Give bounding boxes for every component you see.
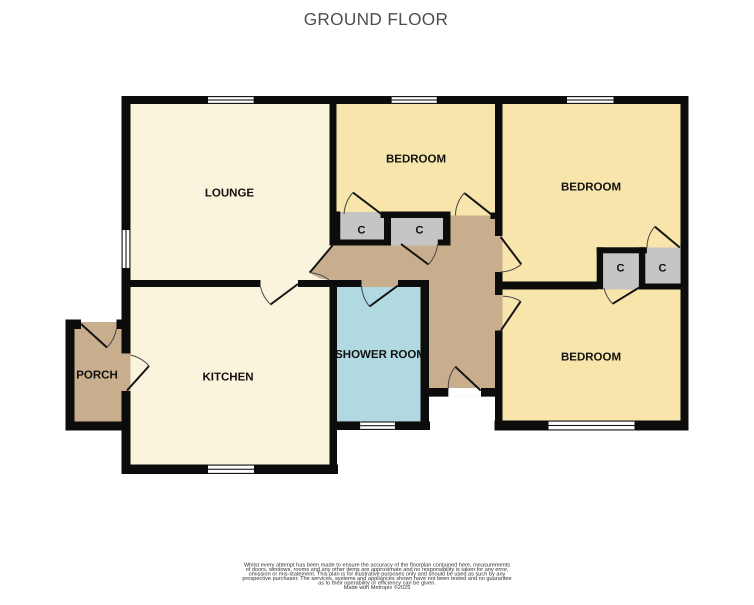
svg-text:C: C (358, 225, 366, 237)
svg-text:SHOWER ROOM: SHOWER ROOM (335, 349, 426, 361)
svg-text:Made with Metropix ©2025: Made with Metropix ©2025 (344, 584, 411, 591)
svg-text:C: C (617, 263, 625, 275)
svg-text:BEDROOM: BEDROOM (561, 182, 621, 194)
svg-text:KITCHEN: KITCHEN (202, 372, 253, 384)
svg-text:GROUND FLOOR: GROUND FLOOR (304, 9, 449, 29)
svg-text:BEDROOM: BEDROOM (561, 352, 621, 364)
svg-text:BEDROOM: BEDROOM (386, 154, 446, 166)
svg-text:C: C (416, 225, 424, 237)
svg-text:PORCH: PORCH (76, 370, 118, 382)
svg-text:C: C (659, 263, 667, 275)
svg-text:LOUNGE: LOUNGE (205, 188, 255, 200)
